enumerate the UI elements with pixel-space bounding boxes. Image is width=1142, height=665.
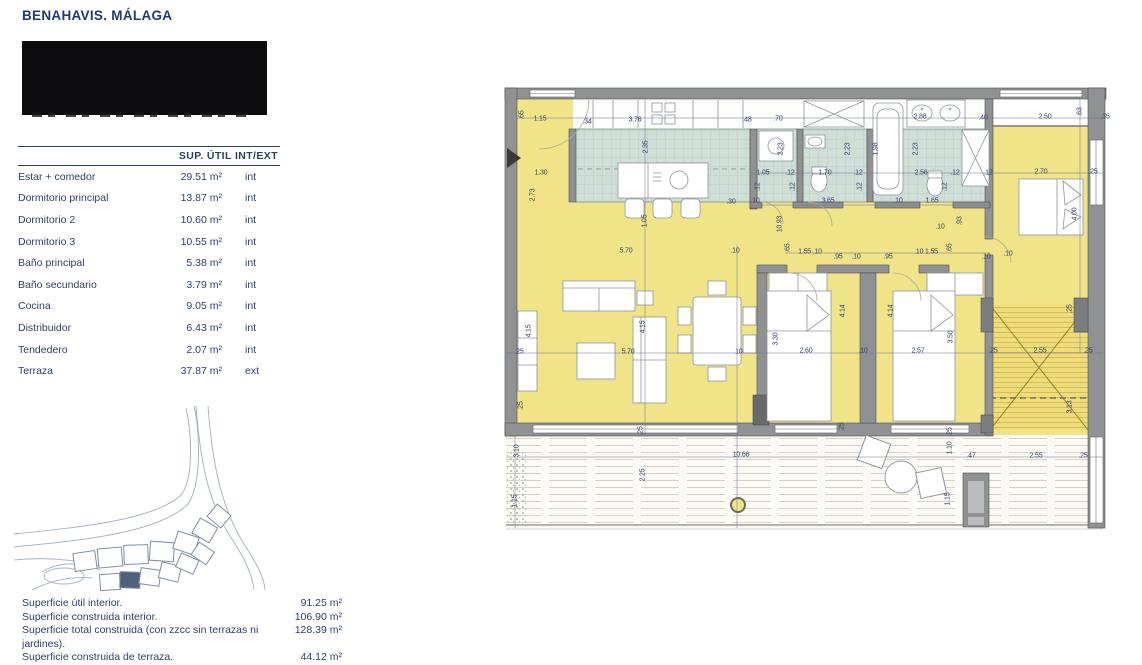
summary-label: Superficie útil interior. [22,597,122,611]
dining-table [693,297,741,365]
master-bed [1019,179,1083,235]
stool [653,199,672,218]
room-area: 13.87 m² [170,192,236,204]
room-label: Dormitorio principal [18,192,170,204]
site-buildings [73,504,231,591]
stool [625,199,644,218]
summary-value: 128.39 m² [295,624,342,651]
site-highlighted-building [120,572,141,589]
room-type: int [236,236,280,248]
table-row: Baño secundario3.79 m²int [18,274,280,296]
pillar [753,395,769,425]
area-table: SUP. ÚTIL INT/EXT Estar + comedor29.51 m… [18,146,280,382]
chair [708,367,726,381]
chair [708,281,726,295]
floor-plan-drawing [503,85,1118,555]
room-area: 29.51 m² [170,171,236,183]
room-area: 10.60 m² [170,214,236,226]
summary-table: Superficie útil interior.91.25 m²Superfi… [22,597,342,665]
room-area: 10.55 m² [170,236,236,248]
terrace-light [731,498,745,512]
summary-value: 91.25 m² [301,597,342,611]
summary-value: 44.12 m² [301,651,342,665]
bathtub [873,103,903,195]
table-row: Tendedero2.07 m²int [18,339,280,361]
redacted-block [22,41,267,115]
armchair [577,343,615,379]
table-row: Cocina9.05 m²int [18,296,280,318]
chair [678,307,691,325]
floor-plan: .651.15.343.76.48.702.88.402.50.63.351.3… [503,85,1118,555]
room-type: int [236,279,280,291]
stool [681,199,700,218]
room-area: 37.87 m² [170,365,236,377]
room-type: int [236,344,280,356]
table-row: Dormitorio 210.60 m²int [18,209,280,231]
table-row: Baño principal5.38 m²int [18,252,280,274]
redacted-text-remnant [32,112,250,117]
site-location-sketch [12,404,284,592]
room-area: 5.38 m² [170,257,236,269]
room-label: Estar + comedor [18,171,170,183]
room-label: Baño principal [18,257,170,269]
room-type: ext [236,365,280,377]
room-area: 3.79 m² [170,279,236,291]
bed-3 [893,291,955,421]
room-label: Tendedero [18,344,170,356]
table-row: Dormitorio principal13.87 m²int [18,188,280,210]
table-row: Estar + comedor29.51 m²int [18,166,280,188]
hatched-void [990,305,1088,430]
summary-value: 106.90 m² [295,611,342,625]
room-type: int [236,192,280,204]
room-label: Distribuidor [18,322,170,334]
kitchen-island [618,163,708,198]
summary-row: Superficie construida interior.106.90 m² [22,611,342,625]
room-area: 6.43 m² [170,322,236,334]
terrace [506,435,1103,529]
summary-row: Superficie construida de terraza.44.12 m… [22,651,342,665]
room-type: int [236,171,280,183]
room-type: int [236,214,280,226]
terrace-chair [916,468,947,499]
chair [743,307,756,325]
room-label: Terraza [18,365,170,377]
bed-2 [767,291,831,421]
chair [678,335,691,353]
area-table-rows: Estar + comedor29.51 m²intDormitorio pri… [18,166,280,382]
room-label: Dormitorio 3 [18,236,170,248]
sideboard [518,311,537,391]
page-title: BENAHAVIS. MÁLAGA [22,8,172,23]
table-row: Distribuidor6.43 m²int [18,317,280,339]
summary-label: Superficie construida de terraza. [22,651,173,665]
chair [743,335,756,353]
round-table [885,461,917,493]
summary-label: Superficie total construida (con zzcc si… [22,624,295,651]
summary-row: Superficie útil interior.91.25 m² [22,597,342,611]
table-row: Dormitorio 310.55 m²int [18,231,280,253]
room-area: 2.07 m² [170,344,236,356]
table-row: Terraza37.87 m²ext [18,360,280,382]
stone-strip [506,453,528,527]
room-type: int [236,300,280,312]
room-area: 9.05 m² [170,300,236,312]
room-label: Cocina [18,300,170,312]
room-label: Baño secundario [18,279,170,291]
room-type: int [236,257,280,269]
area-table-header: SUP. ÚTIL INT/EXT [18,146,280,166]
summary-label: Superficie construida interior. [22,611,157,625]
summary-row: Superficie total construida (con zzcc si… [22,624,342,651]
room-type: int [236,322,280,334]
room-label: Dormitorio 2 [18,214,170,226]
